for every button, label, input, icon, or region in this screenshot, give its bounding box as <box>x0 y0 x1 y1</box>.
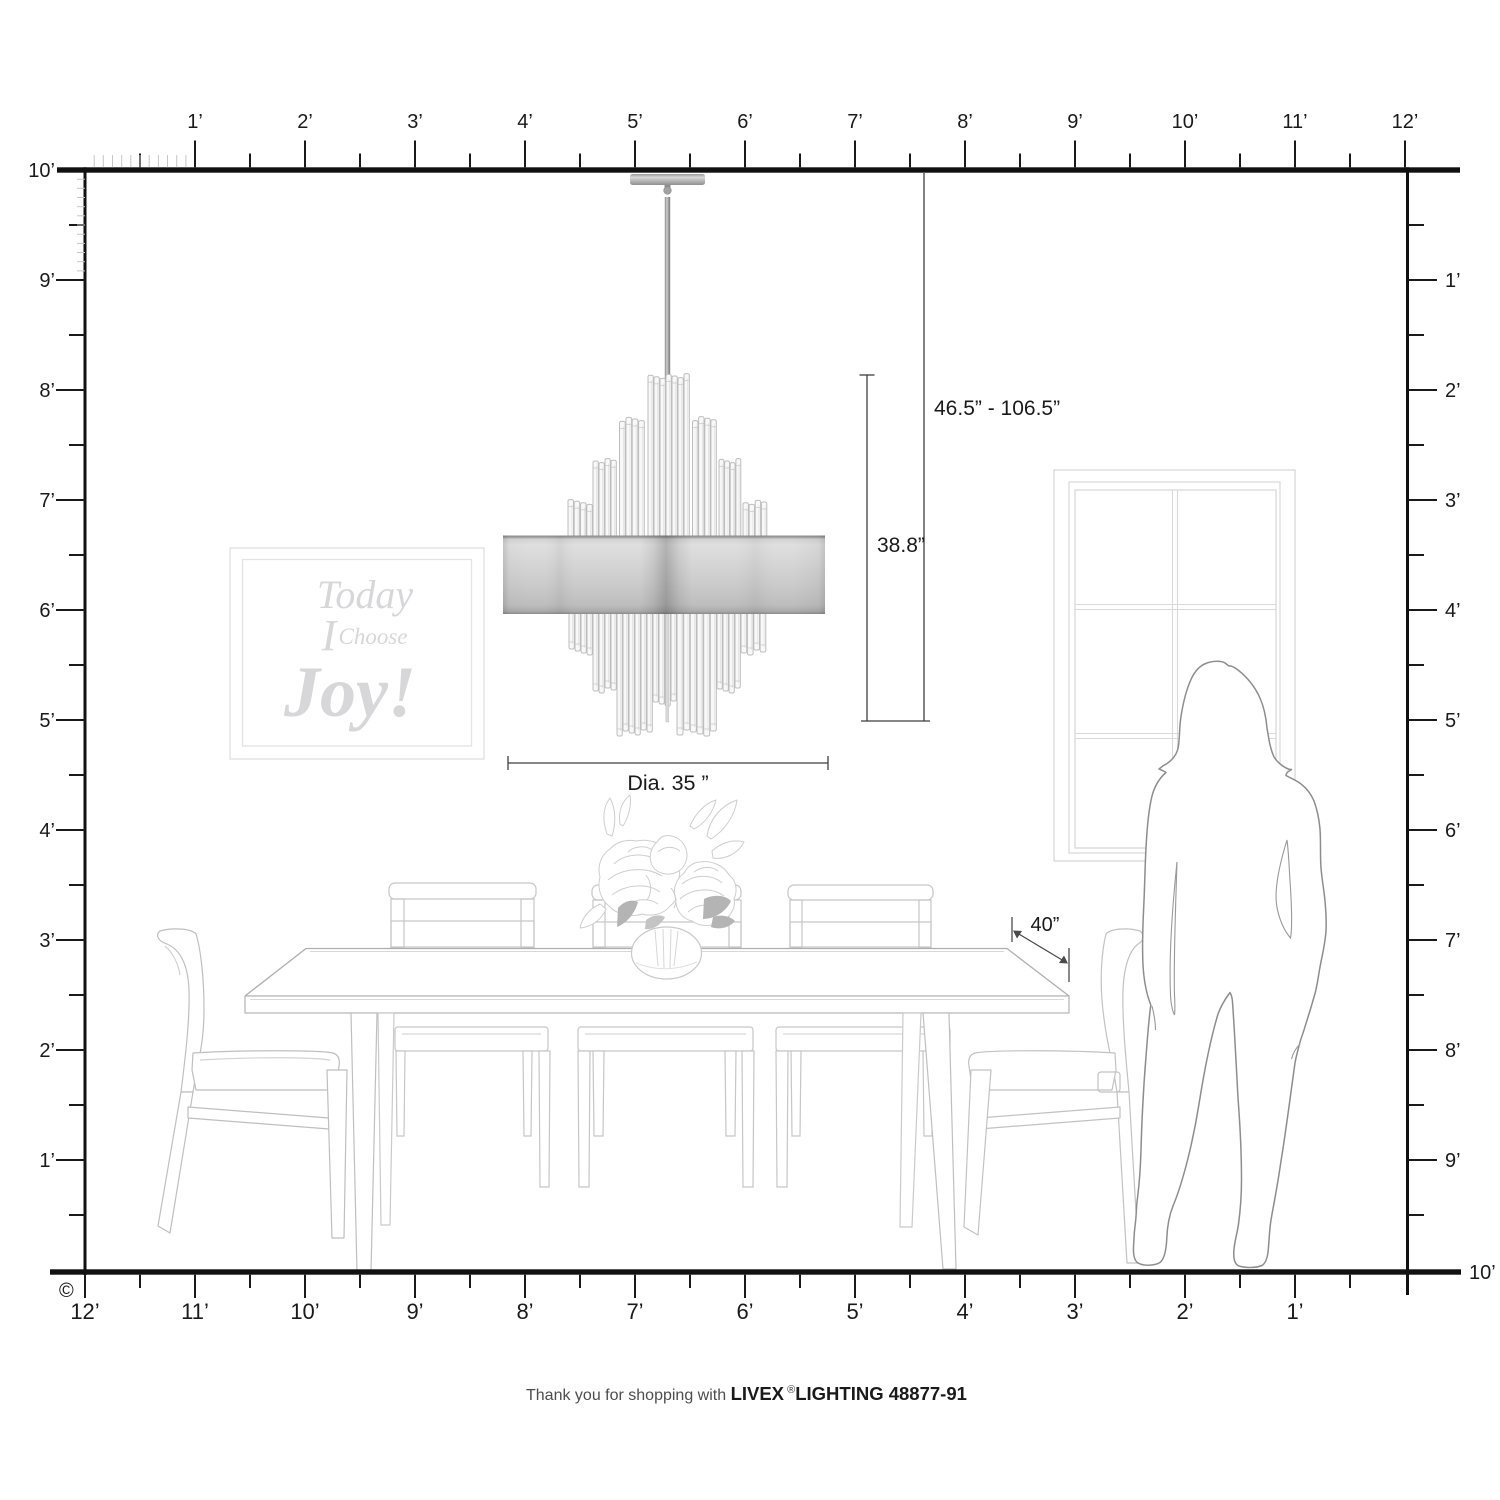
svg-text:4’: 4’ <box>517 111 533 133</box>
svg-text:10’: 10’ <box>290 1299 319 1324</box>
svg-text:40”: 40” <box>1031 914 1060 936</box>
svg-text:3’: 3’ <box>407 111 423 133</box>
svg-text:6’: 6’ <box>736 1299 753 1324</box>
svg-text:5’: 5’ <box>1445 710 1461 732</box>
svg-text:©: © <box>59 1280 74 1302</box>
svg-text:9’: 9’ <box>406 1299 423 1324</box>
svg-text:5’: 5’ <box>39 710 55 732</box>
svg-text:10’: 10’ <box>28 160 55 182</box>
svg-text:1’: 1’ <box>187 111 203 133</box>
svg-text:8’: 8’ <box>957 111 973 133</box>
svg-text:46.5” - 106.5”: 46.5” - 106.5” <box>934 397 1060 420</box>
svg-text:5’: 5’ <box>846 1299 863 1324</box>
svg-text:Dia. 35 ”: Dia. 35 ” <box>627 771 708 795</box>
svg-text:3’: 3’ <box>1066 1299 1083 1324</box>
svg-text:1’: 1’ <box>39 1150 55 1172</box>
svg-text:7’: 7’ <box>1445 930 1461 952</box>
svg-text:2’: 2’ <box>1445 380 1461 402</box>
svg-text:6’: 6’ <box>1445 820 1461 842</box>
svg-text:2’: 2’ <box>39 1040 55 1062</box>
svg-text:2’: 2’ <box>1176 1299 1193 1324</box>
svg-text:10’: 10’ <box>1469 1262 1496 1284</box>
svg-text:7’: 7’ <box>39 490 55 512</box>
svg-text:Joy!: Joy! <box>283 652 416 732</box>
svg-text:7’: 7’ <box>626 1299 643 1324</box>
svg-text:2’: 2’ <box>297 111 313 133</box>
svg-text:12’: 12’ <box>70 1299 99 1324</box>
svg-text:3’: 3’ <box>1445 490 1461 512</box>
svg-text:9’: 9’ <box>1067 111 1083 133</box>
svg-text:8’: 8’ <box>39 380 55 402</box>
svg-text:9’: 9’ <box>39 270 55 292</box>
svg-text:3’: 3’ <box>39 930 55 952</box>
svg-text:38.8”: 38.8” <box>877 534 925 557</box>
svg-text:4’: 4’ <box>956 1299 973 1324</box>
svg-text:6’: 6’ <box>737 111 753 133</box>
svg-text:11’: 11’ <box>181 1299 209 1324</box>
svg-text:10’: 10’ <box>1172 111 1199 133</box>
svg-text:8’: 8’ <box>1445 1040 1461 1062</box>
svg-text:4’: 4’ <box>39 820 55 842</box>
svg-text:5’: 5’ <box>627 111 643 133</box>
svg-text:4’: 4’ <box>1445 600 1461 622</box>
svg-text:Choose: Choose <box>339 624 408 649</box>
svg-text:Thank you for shopping with LI: Thank you for shopping with LIVEX ®LIGHT… <box>526 1383 967 1404</box>
svg-text:7’: 7’ <box>847 111 863 133</box>
svg-text:12’: 12’ <box>1392 111 1419 133</box>
svg-text:9’: 9’ <box>1445 1150 1461 1172</box>
svg-text:8’: 8’ <box>516 1299 533 1324</box>
svg-text:6’: 6’ <box>39 600 55 622</box>
svg-text:1’: 1’ <box>1445 270 1461 292</box>
svg-text:11’: 11’ <box>1282 111 1307 133</box>
svg-text:1’: 1’ <box>1286 1299 1303 1324</box>
